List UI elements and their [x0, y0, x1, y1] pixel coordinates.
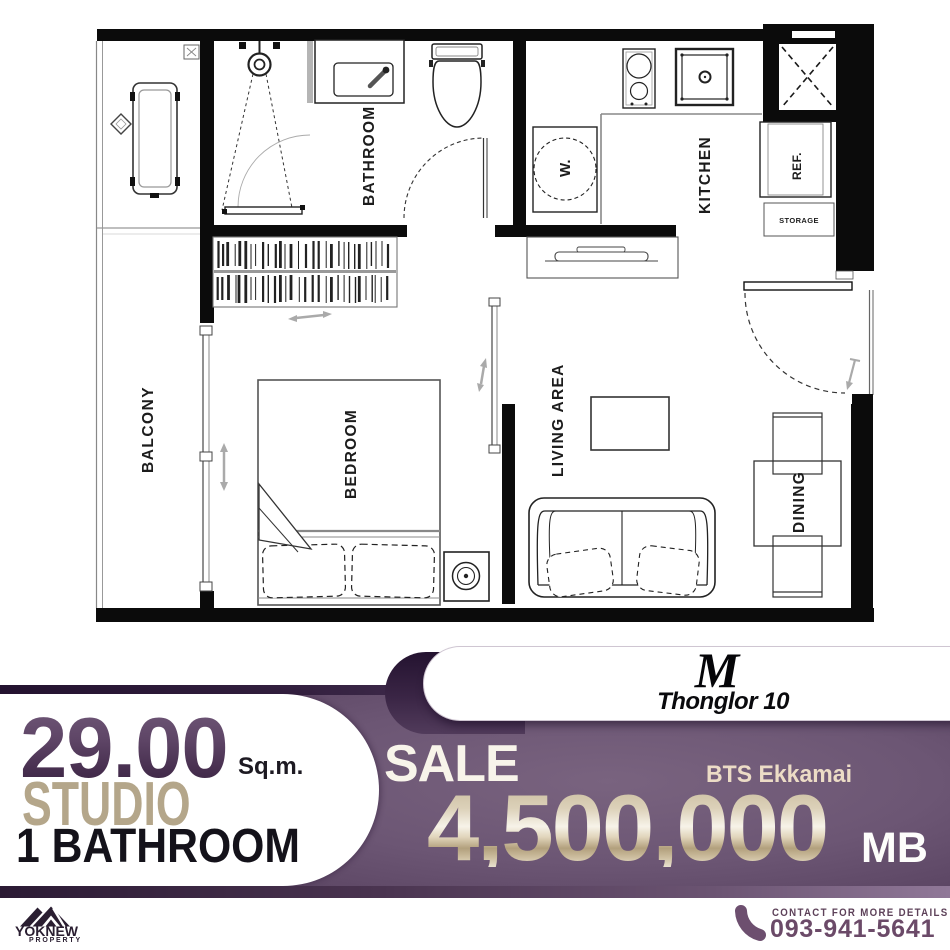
svg-text:BEDROOM: BEDROOM: [343, 409, 360, 499]
svg-text:STORAGE: STORAGE: [779, 216, 819, 225]
svg-text:LIVING AREA: LIVING AREA: [550, 363, 567, 477]
svg-text:W.: W.: [557, 160, 574, 178]
svg-text:BATHROOM: BATHROOM: [361, 105, 378, 206]
svg-text:KITCHEN: KITCHEN: [697, 136, 714, 214]
svg-text:DINING: DINING: [791, 471, 808, 533]
svg-text:REF.: REF.: [790, 152, 804, 180]
svg-text:BALCONY: BALCONY: [140, 386, 157, 473]
